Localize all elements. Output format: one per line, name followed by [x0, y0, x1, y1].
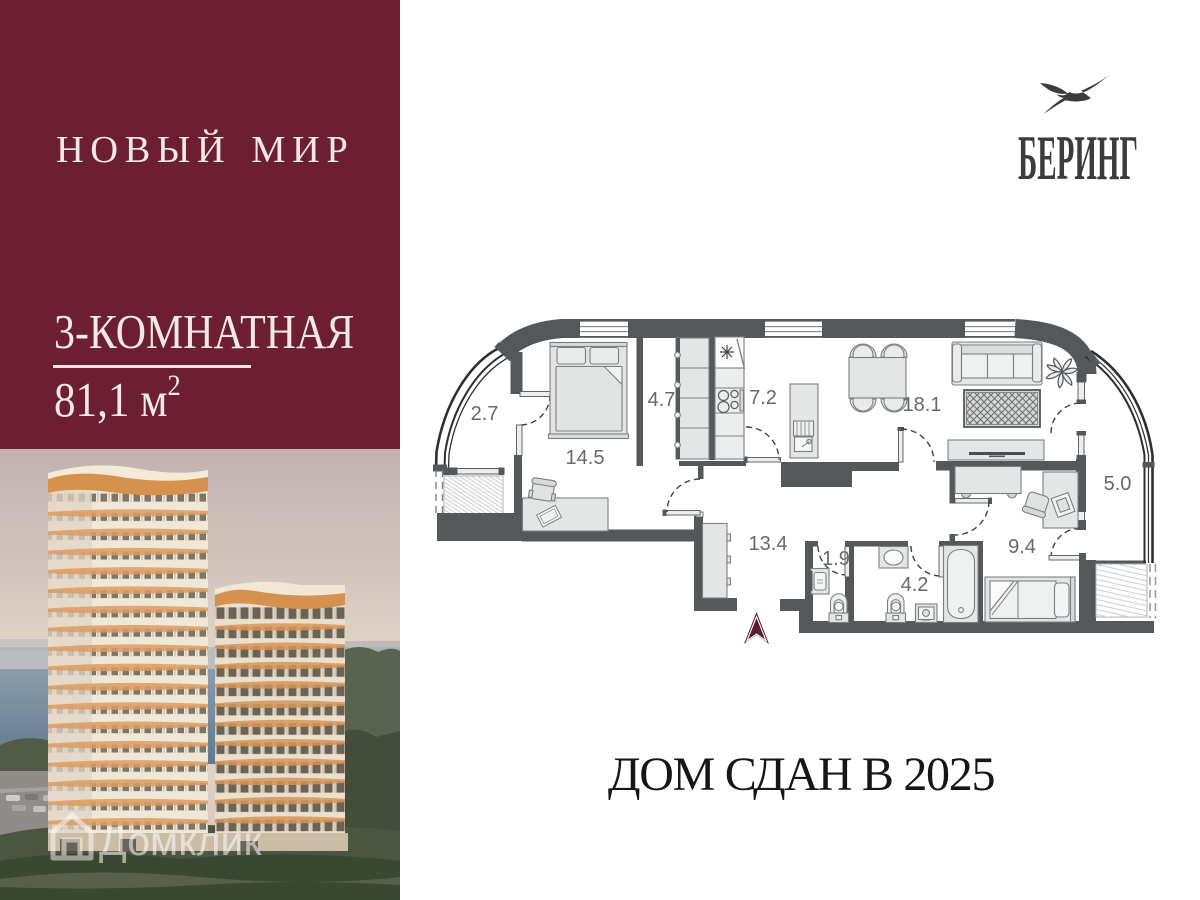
svg-text:БЕРИНГ: БЕРИНГ — [1018, 123, 1138, 193]
svg-text:4.7: 4.7 — [648, 389, 676, 411]
svg-text:2.7: 2.7 — [471, 403, 499, 425]
svg-text:7.2: 7.2 — [749, 387, 777, 409]
svg-text:9.4: 9.4 — [1008, 536, 1036, 558]
svg-text:13.4: 13.4 — [749, 533, 788, 555]
svg-text:ДОМ СДАН В 2025: ДОМ СДАН В 2025 — [608, 748, 995, 801]
svg-text:1.9: 1.9 — [822, 548, 850, 570]
svg-text:18.1: 18.1 — [903, 394, 942, 416]
svg-text:14.5: 14.5 — [566, 447, 605, 469]
svg-text:4.2: 4.2 — [901, 574, 929, 596]
svg-text:5.0: 5.0 — [1104, 473, 1132, 495]
